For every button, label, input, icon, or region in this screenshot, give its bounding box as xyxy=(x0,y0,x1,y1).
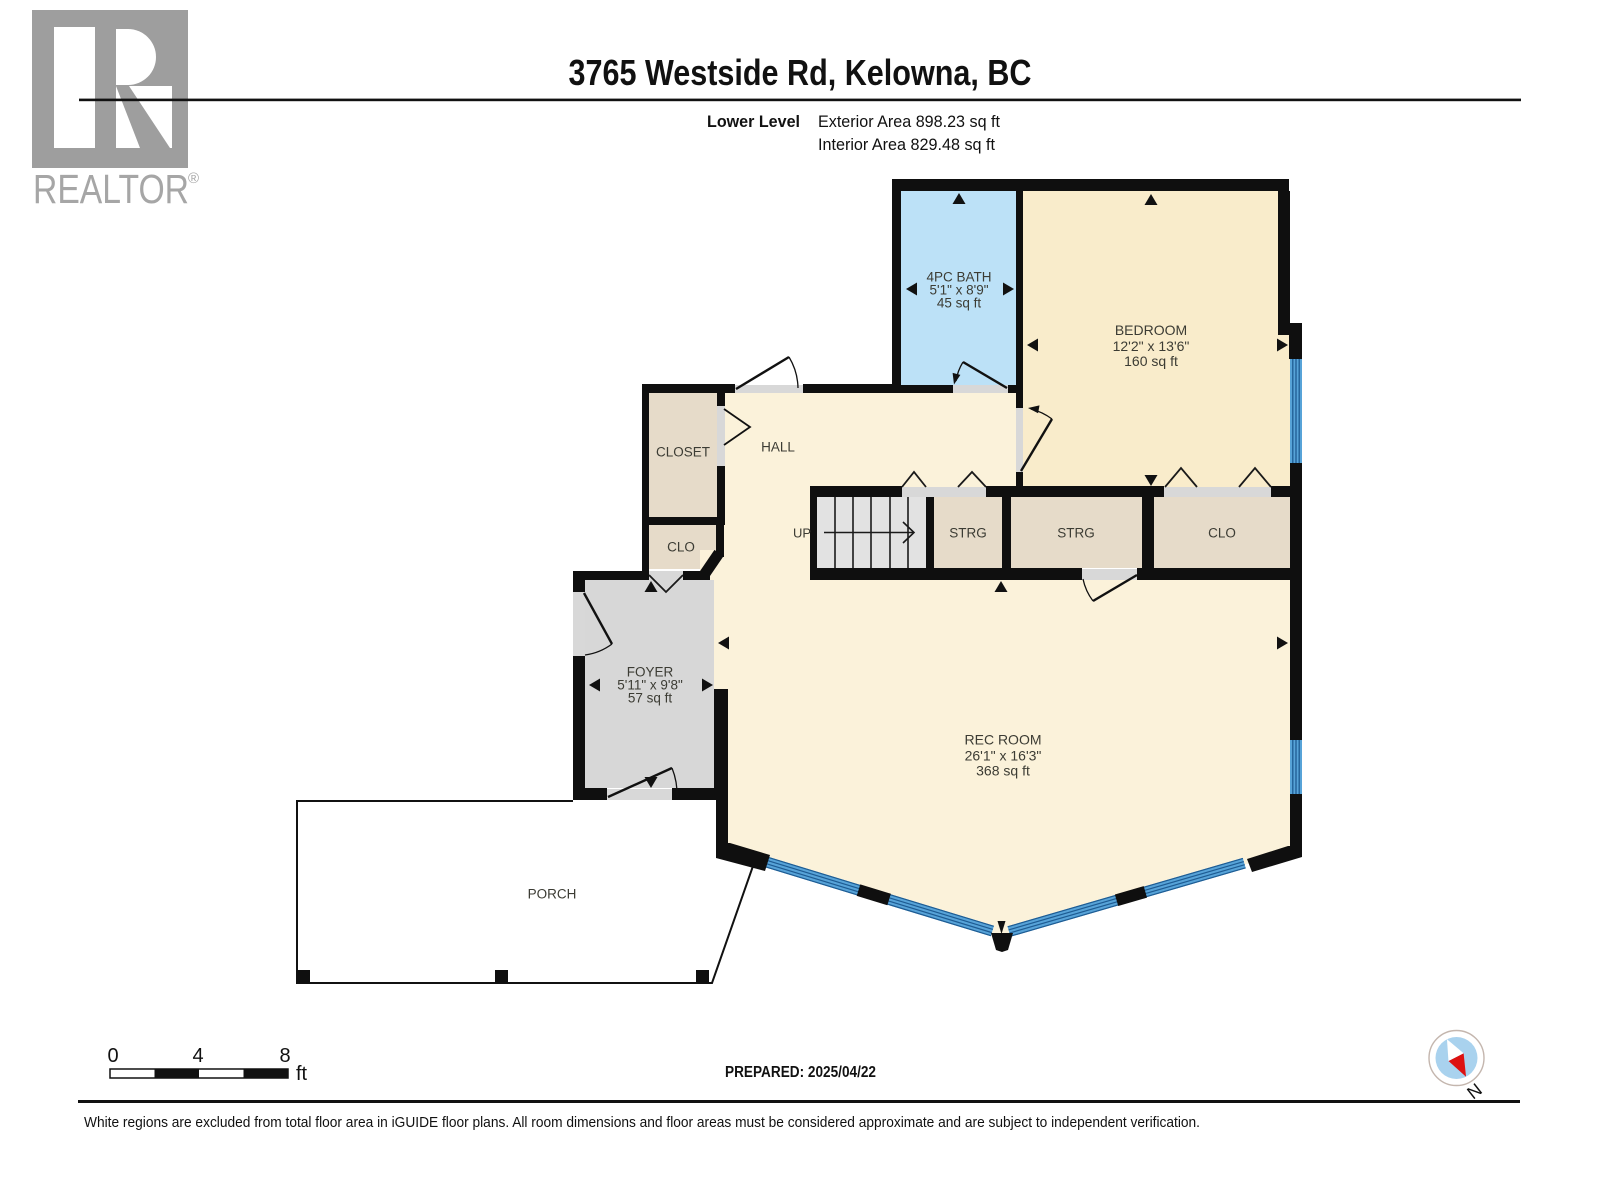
svg-text:3765 Westside Rd, Kelowna, BC: 3765 Westside Rd, Kelowna, BC xyxy=(569,52,1032,93)
svg-text:CLO: CLO xyxy=(667,540,695,555)
svg-text:Lower Level: Lower Level xyxy=(707,112,800,131)
svg-text:CLO: CLO xyxy=(1208,526,1236,541)
svg-text:STRG: STRG xyxy=(1057,526,1095,541)
svg-text:BEDROOM: BEDROOM xyxy=(1115,322,1187,338)
svg-text:12'2" x 13'6": 12'2" x 13'6" xyxy=(1113,338,1190,354)
svg-text:ft: ft xyxy=(296,1063,308,1085)
svg-text:160 sq ft: 160 sq ft xyxy=(1124,353,1178,369)
svg-text:26'1" x 16'3": 26'1" x 16'3" xyxy=(965,748,1042,764)
svg-text:REALTOR: REALTOR xyxy=(33,166,189,212)
svg-text:Interior Area 829.48 sq ft: Interior Area 829.48 sq ft xyxy=(818,136,995,154)
svg-text:0: 0 xyxy=(107,1045,118,1067)
svg-text:4: 4 xyxy=(192,1045,203,1067)
svg-text:8: 8 xyxy=(279,1045,290,1067)
svg-text:HALL: HALL xyxy=(761,440,795,455)
svg-text:PREPARED: 2025/04/22: PREPARED: 2025/04/22 xyxy=(725,1064,876,1081)
svg-text:UP: UP xyxy=(793,526,811,541)
svg-text:®: ® xyxy=(188,170,199,187)
svg-text:57 sq ft: 57 sq ft xyxy=(628,691,673,706)
svg-text:45 sq ft: 45 sq ft xyxy=(937,296,982,311)
svg-text:STRG: STRG xyxy=(949,526,987,541)
svg-text:368 sq ft: 368 sq ft xyxy=(976,763,1030,779)
svg-text:White regions are excluded fro: White regions are excluded from total fl… xyxy=(84,1115,1200,1131)
svg-text:PORCH: PORCH xyxy=(528,887,577,902)
svg-text:Exterior Area 898.23 sq ft: Exterior Area 898.23 sq ft xyxy=(818,113,1000,131)
svg-text:REC ROOM: REC ROOM xyxy=(965,732,1042,748)
svg-text:CLOSET: CLOSET xyxy=(656,445,710,460)
